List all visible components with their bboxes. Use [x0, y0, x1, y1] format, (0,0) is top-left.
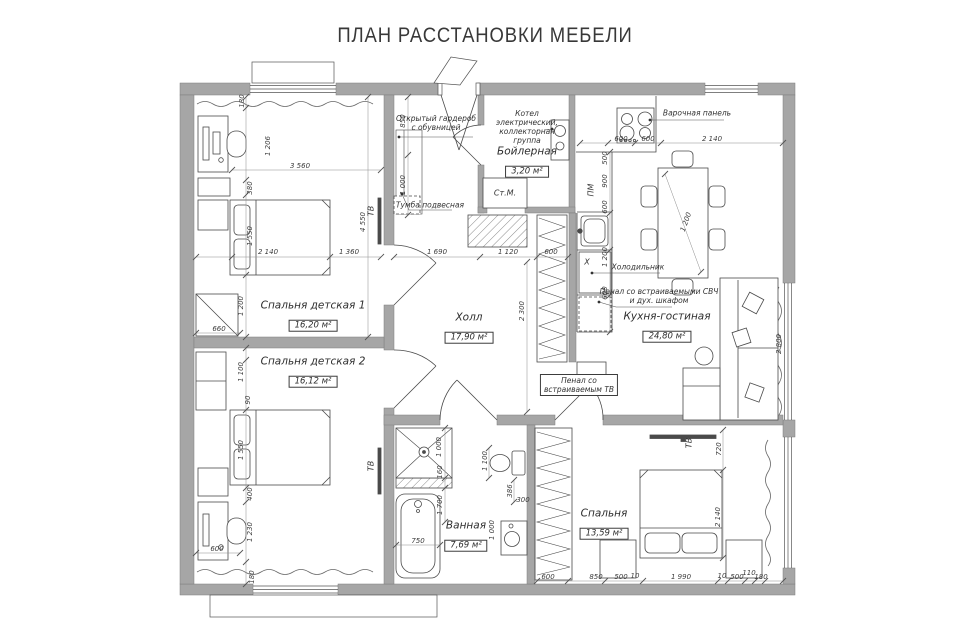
dimension-label: 600: [601, 200, 609, 213]
dining-chair: [709, 229, 725, 250]
dimension-label: 1 000: [399, 175, 407, 195]
room-name: Холл: [445, 313, 494, 325]
dining-chair: [641, 186, 657, 207]
room-name: Бойлерная: [497, 147, 557, 159]
appliance-label: X: [584, 258, 589, 267]
appliance-label: Ст.М.: [494, 189, 516, 198]
toilet: [512, 451, 525, 475]
dimension-label: 1 100: [237, 362, 245, 382]
dimension-label: 180: [238, 94, 246, 107]
appliance-label: ТВ: [367, 206, 376, 216]
dimension-label: 2 140: [702, 135, 722, 143]
dimension-label: 600: [210, 545, 223, 553]
dimension-label: 300: [516, 496, 529, 504]
dimension-label: 1 360: [339, 248, 359, 256]
dimension-label: 380: [246, 181, 254, 194]
room-label: Бойлерная 3,20 м²: [497, 147, 557, 178]
dimension-label: 600: [614, 135, 627, 143]
dimension-label: 1 206: [264, 136, 272, 156]
dining-chair: [672, 151, 693, 167]
dimension-label: 10: [718, 572, 727, 580]
room-area-badge: 3,20 м²: [505, 165, 548, 177]
dresser-1: [198, 178, 230, 196]
dimension-label: 1 000: [435, 437, 443, 457]
dimension-label: 90: [244, 396, 252, 405]
dimension-label: 400: [246, 487, 254, 500]
appliance-label: ТВ: [367, 461, 376, 471]
dimension-label: 3 560: [290, 162, 310, 170]
room-label: Спальня детская 2 16,12 м²: [261, 357, 366, 388]
room-name: Спальня детская 2: [261, 357, 366, 369]
dimension-label: 600: [541, 573, 554, 581]
annotation-label: Варочная панель: [663, 109, 731, 118]
nightstand-2: [198, 468, 228, 496]
room-area-badge: 16,12 м²: [289, 375, 338, 387]
dimension-label: 386: [506, 484, 514, 497]
dimension-label: 1 200: [601, 247, 609, 267]
sofa-chaise: [683, 368, 720, 420]
dining-chair: [709, 186, 725, 207]
chair-2: [227, 518, 246, 544]
appliance-label: ПМ: [587, 184, 596, 197]
dimension-label: 750: [411, 537, 424, 545]
hall-wardrobe: [468, 215, 527, 247]
nightstand-1: [198, 200, 228, 230]
dimension-label: 1 120: [498, 248, 518, 256]
entry-porch: [434, 57, 477, 85]
dimension-label: 180: [248, 570, 256, 583]
dimension-label: 2 140: [714, 507, 722, 527]
room-label: Ванная 7,69 м²: [444, 521, 487, 552]
dimension-label: 720: [715, 442, 723, 455]
room-name: Спальня: [580, 509, 629, 521]
dimension-label: 180: [754, 573, 767, 581]
dimension-label: 600: [544, 248, 557, 256]
room-area-badge: 16,20 м²: [289, 319, 338, 331]
dimension-label: 1 000: [488, 520, 496, 540]
room-label: Спальня детская 1 16,20 м²: [261, 301, 366, 332]
dimension-label: 1 700: [436, 495, 444, 515]
room-area-badge: 13,59 м²: [580, 527, 629, 539]
dimension-label: 1 990: [671, 573, 691, 581]
annotation-label: Котел электрический, коллекторная группа: [496, 109, 558, 145]
room-name: Кухня-гостиная: [623, 312, 710, 324]
room-area-badge: 7,69 м²: [444, 539, 487, 551]
annotation-label: Холодильник: [612, 263, 665, 272]
dimension-label: 660: [212, 325, 225, 333]
tv-1: [378, 198, 381, 244]
room-name: Ванная: [444, 521, 487, 533]
dimension-label: 160: [436, 465, 444, 478]
dimension-label: 1 550: [246, 226, 254, 246]
dimension-label: 500: [601, 151, 609, 164]
annotation-label: Пенал со встраиваемыми СВЧ и дух. шкафом: [600, 287, 719, 305]
side-table: [695, 347, 713, 365]
dimension-label: 900: [601, 174, 609, 187]
dimension-label: 850: [589, 573, 602, 581]
dining-chair: [641, 229, 657, 250]
floor-plan-canvas: ПЛАН РАССТАНОВКИ МЕБЕЛИ: [0, 0, 960, 640]
dimension-label: 1 100: [481, 451, 489, 471]
annotation-label: Открытый гардероб с обувницей: [396, 114, 476, 132]
annotation-label: Тумба подвесная: [396, 201, 464, 210]
dimension-label: 500: [614, 573, 627, 581]
appliance-label: ТВ: [685, 438, 694, 448]
dimension-label: 10: [631, 572, 640, 580]
room-label: Спальня 13,59 м²: [580, 509, 629, 540]
dimension-label: 1 550: [237, 440, 245, 460]
tv-3: [650, 435, 716, 439]
dimension-label: 1 200: [237, 296, 245, 316]
dimension-label: 2 300: [518, 301, 526, 321]
room-name: Спальня детская 1: [261, 301, 366, 313]
room-area-badge: 24,80 м²: [643, 330, 692, 342]
dimension-label: 1 230: [246, 522, 254, 542]
dimension-label: 2 140: [258, 248, 278, 256]
dimension-label: 1 690: [427, 248, 447, 256]
room-area-badge: 17,90 м²: [445, 331, 494, 343]
dimension-label: 600: [641, 135, 654, 143]
tv-2: [378, 448, 381, 494]
room-label: Холл 17,90 м²: [445, 313, 494, 344]
room-label: Кухня-гостиная 24,80 м²: [623, 312, 710, 343]
annotation-label: Пенал со встраиваемым ТВ: [540, 374, 618, 396]
dimension-label: 2 800: [775, 334, 783, 354]
chair-1: [227, 131, 246, 157]
